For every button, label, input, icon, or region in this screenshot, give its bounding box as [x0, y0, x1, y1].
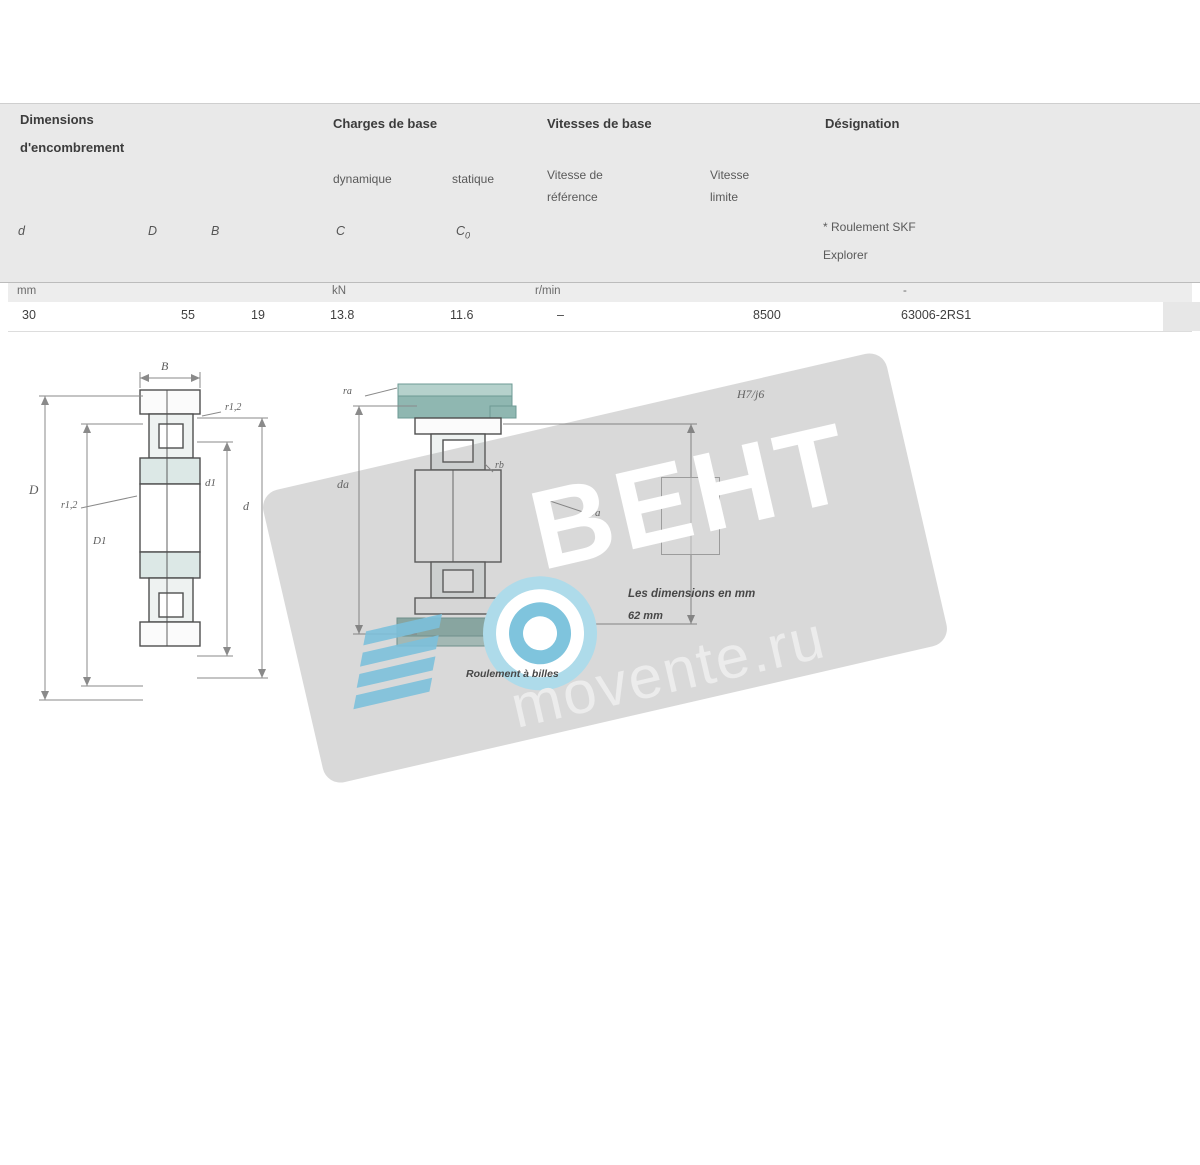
fig3-caption-line1: Les dimensions en mm — [628, 588, 755, 600]
subheader-vlim-line2: limite — [710, 190, 738, 204]
col-letter-D: D — [148, 224, 157, 238]
watermark-logo-ring — [503, 596, 577, 670]
cell-C: 13.8 — [330, 308, 354, 322]
col-letter-d: d — [18, 224, 25, 238]
table-row-end-block — [1163, 302, 1200, 331]
fig1-label-d: d — [243, 499, 250, 513]
cell-d: 30 — [22, 308, 36, 322]
fig1-label-D: D — [28, 482, 39, 497]
explorer-note-line2: Explorer — [823, 248, 868, 262]
unit-rmin: r/min — [535, 285, 561, 297]
col-letter-B: B — [211, 224, 219, 238]
fig1-label-D1: D1 — [92, 535, 106, 547]
col-group-designation: Désignation — [825, 116, 899, 131]
cell-D: 55 — [181, 308, 195, 322]
subheader-vlim-line1: Vitesse — [710, 168, 749, 182]
watermark-logo-core — [520, 613, 561, 654]
col-group-dimensions-line2: d'encombrement — [20, 140, 124, 155]
col-group-vitesses: Vitesses de base — [547, 116, 652, 131]
catalog-page: Dimensions d'encombrement Charges de bas… — [0, 0, 1200, 1165]
table-row-underline — [8, 331, 1192, 332]
cell-designation: 63006-2RS1 — [901, 308, 971, 322]
cell-C0: 11.6 — [450, 308, 473, 322]
cell-vref: – — [557, 308, 564, 322]
table-units-band — [8, 283, 1192, 302]
fig1-label-r12-mid: r1,2 — [61, 500, 77, 511]
col-letter-C0-base: C — [456, 224, 465, 238]
unit-mm: mm — [17, 285, 36, 297]
col-letter-C0-sub: 0 — [465, 231, 470, 241]
col-group-dimensions-line1: Dimensions — [20, 112, 94, 127]
fig1-label-r12-top: r1,2 — [225, 402, 241, 413]
col-letter-C0: C0 — [456, 224, 470, 241]
col-letter-C: C — [336, 224, 345, 238]
subheader-statique: statique — [452, 172, 494, 186]
unit-dash: - — [903, 285, 907, 297]
subheader-vref-line1: Vitesse de — [547, 168, 603, 182]
fig1-caption: Roulement à billes — [466, 668, 559, 680]
cell-B: 19 — [251, 308, 265, 322]
subheader-dynamique: dynamique — [333, 172, 392, 186]
unit-kn: kN — [332, 285, 346, 297]
col-group-charges: Charges de base — [333, 116, 437, 131]
watermark-brand-text: ВЕНТ — [521, 406, 863, 588]
fig3-caption-line2: 62 mm — [628, 610, 663, 622]
fig1-label-B: B — [161, 359, 169, 373]
fig1-label-d1: d1 — [205, 477, 216, 489]
fig2-label-ra: ra — [343, 386, 352, 397]
cell-vlim: 8500 — [753, 308, 781, 322]
subheader-vref-line2: référence — [547, 190, 598, 204]
explorer-note-line1: * Roulement SKF — [823, 220, 916, 234]
